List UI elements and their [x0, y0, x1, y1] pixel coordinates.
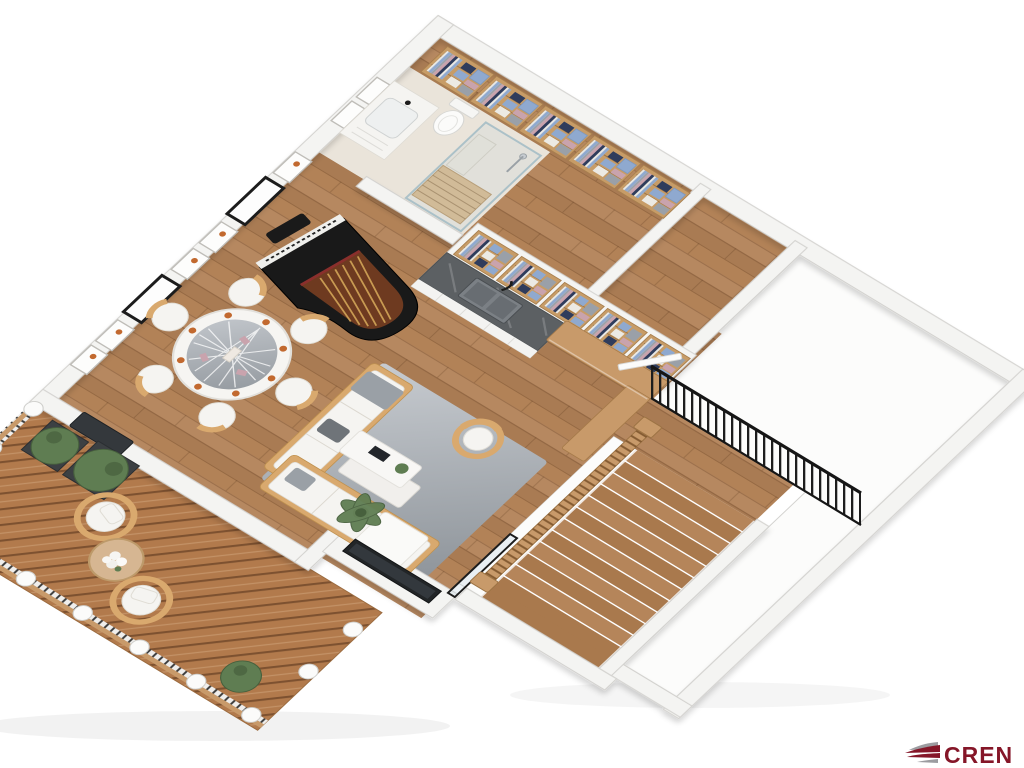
deck-ground-shadow — [0, 711, 450, 741]
floor-plan-rendering: CREN — [0, 0, 1024, 768]
watermark-brand-text: CREN — [944, 742, 1013, 768]
floor-plan-canvas: CREN — [0, 0, 1024, 768]
